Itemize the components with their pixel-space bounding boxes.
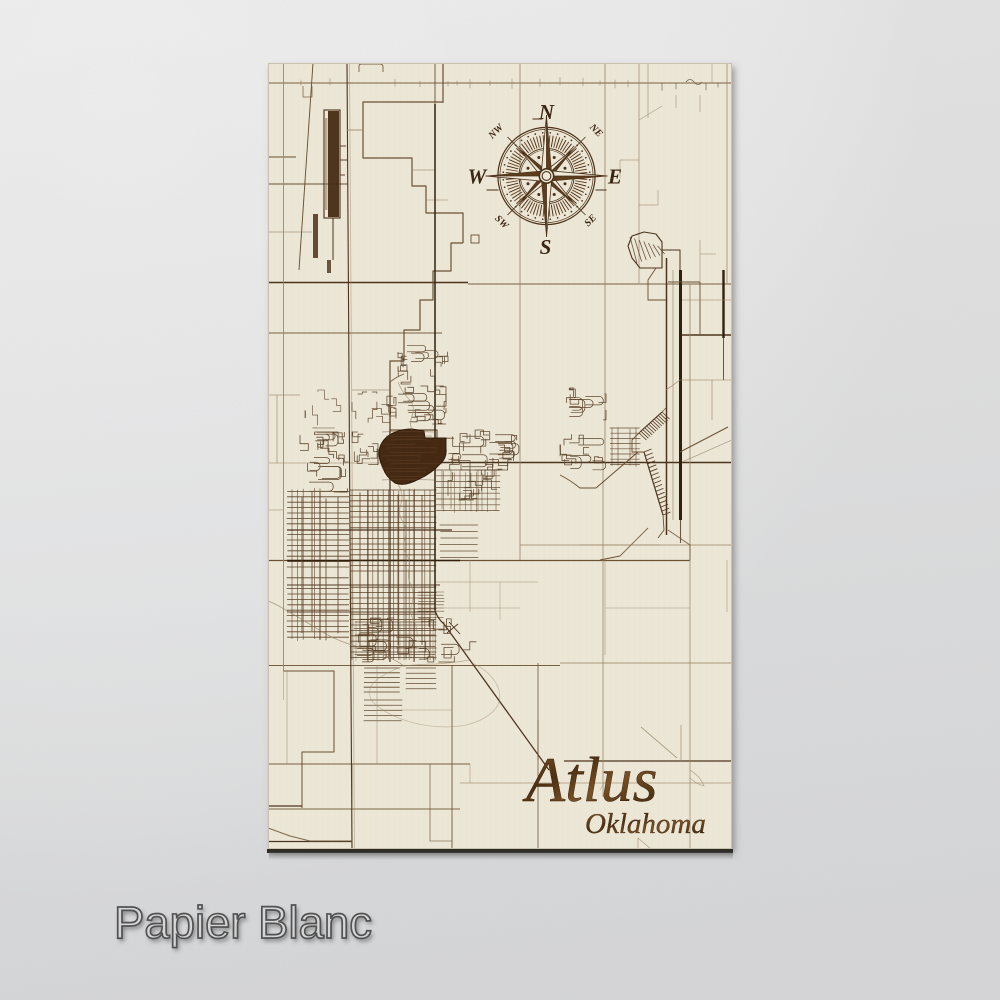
svg-text:Atlus: Atlus [522, 744, 658, 815]
svg-text:Oklahoma: Oklahoma [585, 808, 706, 840]
svg-text:E: E [607, 165, 622, 189]
svg-text:W: W [468, 165, 488, 189]
svg-text:N: N [538, 100, 555, 124]
svg-text:S: S [540, 235, 552, 259]
